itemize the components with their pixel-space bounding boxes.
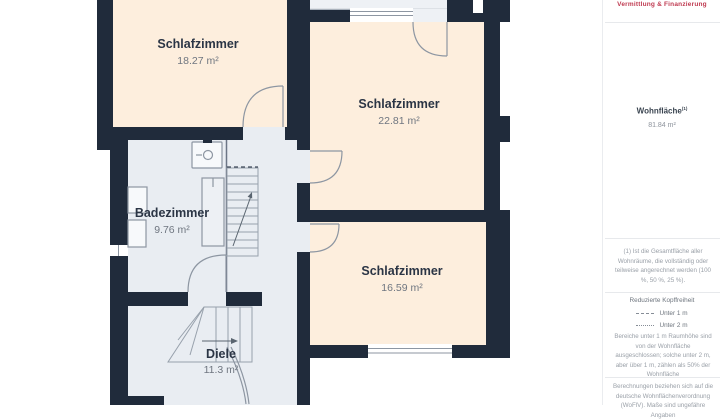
living-area-summary: Wohnfläche(1) 81.84 m²: [603, 106, 720, 129]
room-area: 18.27 m²: [177, 55, 219, 67]
calculation-disclaimer: Berechnungen beziehen sich auf die deuts…: [612, 382, 714, 420]
floorplan-svg: Schlafzimmer 18.27 m² Schlafzimmer 22.81…: [0, 0, 520, 405]
divider: [605, 22, 720, 23]
window-bottom: [368, 344, 452, 359]
headroom-note: Bereiche unter 1 m Raumhöhe sind von der…: [612, 332, 714, 380]
footnote-marker: (1): [682, 106, 688, 111]
living-area-value: 81.84 m²: [603, 122, 720, 129]
dotted-line-icon: [636, 325, 654, 326]
window-left-small: [109, 245, 128, 256]
room-label: Schlafzimmer: [361, 264, 442, 278]
room-label: Diele: [206, 347, 236, 361]
headroom-title: Reduzierte Kopffreiheit: [603, 297, 720, 304]
legend-item: Unter 1 m: [603, 310, 720, 317]
legend-label: Unter 1 m: [659, 310, 687, 317]
bidet-fixture: [128, 220, 146, 247]
room-label: Schlafzimmer: [157, 37, 238, 51]
room-area: 11.3 m²: [204, 364, 239, 376]
area-footnote: (1) Ist die Gesamtfläche aller Wohnräume…: [612, 247, 714, 285]
divider: [605, 238, 720, 239]
legend-item: Unter 2 m: [603, 322, 720, 329]
living-area-label: Wohnfläche(1): [603, 106, 720, 116]
dashed-line-icon: [636, 313, 654, 314]
floorplan: Schlafzimmer 18.27 m² Schlafzimmer 22.81…: [0, 0, 520, 405]
legend-label: Unter 2 m: [659, 322, 687, 329]
info-panel: Vermittlung & Finanzierung Wohnfläche(1)…: [602, 0, 720, 405]
brand-tagline: Vermittlung & Finanzierung: [603, 1, 720, 8]
wall-notch: [473, 0, 483, 13]
sink-fixture: [192, 139, 222, 168]
room-area: 9.76 m²: [154, 224, 190, 236]
room-area: 16.59 m²: [381, 282, 423, 294]
divider: [605, 377, 720, 378]
room-label: Schlafzimmer: [358, 97, 439, 111]
divider: [605, 292, 720, 293]
window-top: [350, 8, 413, 21]
room-label: Badezimmer: [135, 206, 209, 220]
room-area: 22.81 m²: [378, 115, 420, 127]
